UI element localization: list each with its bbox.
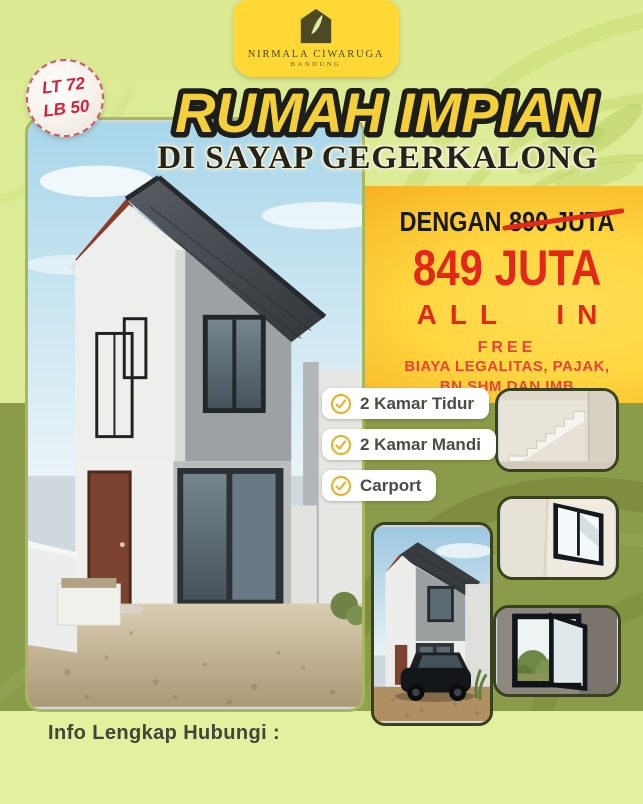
new-price: 849 JUTA (399, 239, 616, 297)
main-house-photo (25, 117, 365, 712)
carport-house-photo (371, 522, 493, 726)
bedroom-window-photo (497, 496, 619, 580)
real-estate-flyer: NIRMALA CIWARUGA BANDUNG LT 72 LB 50 RUM… (0, 0, 643, 804)
subtitle: DI SAYAP GEGERKALONG (118, 140, 638, 177)
all-in-label: ALL IN (378, 299, 636, 331)
open-window-photo (493, 605, 621, 697)
staircase-photo (495, 388, 619, 472)
feature-label: Carport (360, 476, 421, 496)
feature-pill-bathrooms: 2 Kamar Mandi (322, 429, 496, 460)
building-size-label: LB 50 (42, 95, 91, 123)
contact-label: Info Lengkap Hubungi : (48, 722, 280, 745)
check-circle-icon (330, 434, 352, 456)
old-price-line: DENGAN 890 JUTA (399, 206, 616, 238)
price-block: DENGAN 890 JUTA 849 JUTA ALL IN FREE BIA… (378, 206, 636, 396)
developer-logo-tab: NIRMALA CIWARUGA BANDUNG (233, 0, 399, 77)
feature-label: 2 Kamar Mandi (360, 435, 481, 455)
feature-pill-bedrooms: 2 Kamar Tidur (322, 388, 489, 419)
old-price: 890 JUTA (509, 206, 614, 238)
title-text: RUMAH IMPIAN (175, 81, 597, 144)
house-leaf-icon (297, 6, 335, 46)
logo-city: BANDUNG (291, 61, 342, 68)
price-prefix: DENGAN (400, 206, 502, 238)
logo-name: NIRMALA CIWARUGA (248, 49, 384, 60)
free-item-line1: BIAYA LEGALITAS, PAJAK, (378, 357, 636, 377)
feature-pill-carport: Carport (322, 470, 436, 501)
check-circle-icon (330, 475, 352, 497)
check-circle-icon (330, 393, 352, 415)
feature-label: 2 Kamar Tidur (360, 394, 474, 414)
free-label: FREE (378, 339, 636, 357)
